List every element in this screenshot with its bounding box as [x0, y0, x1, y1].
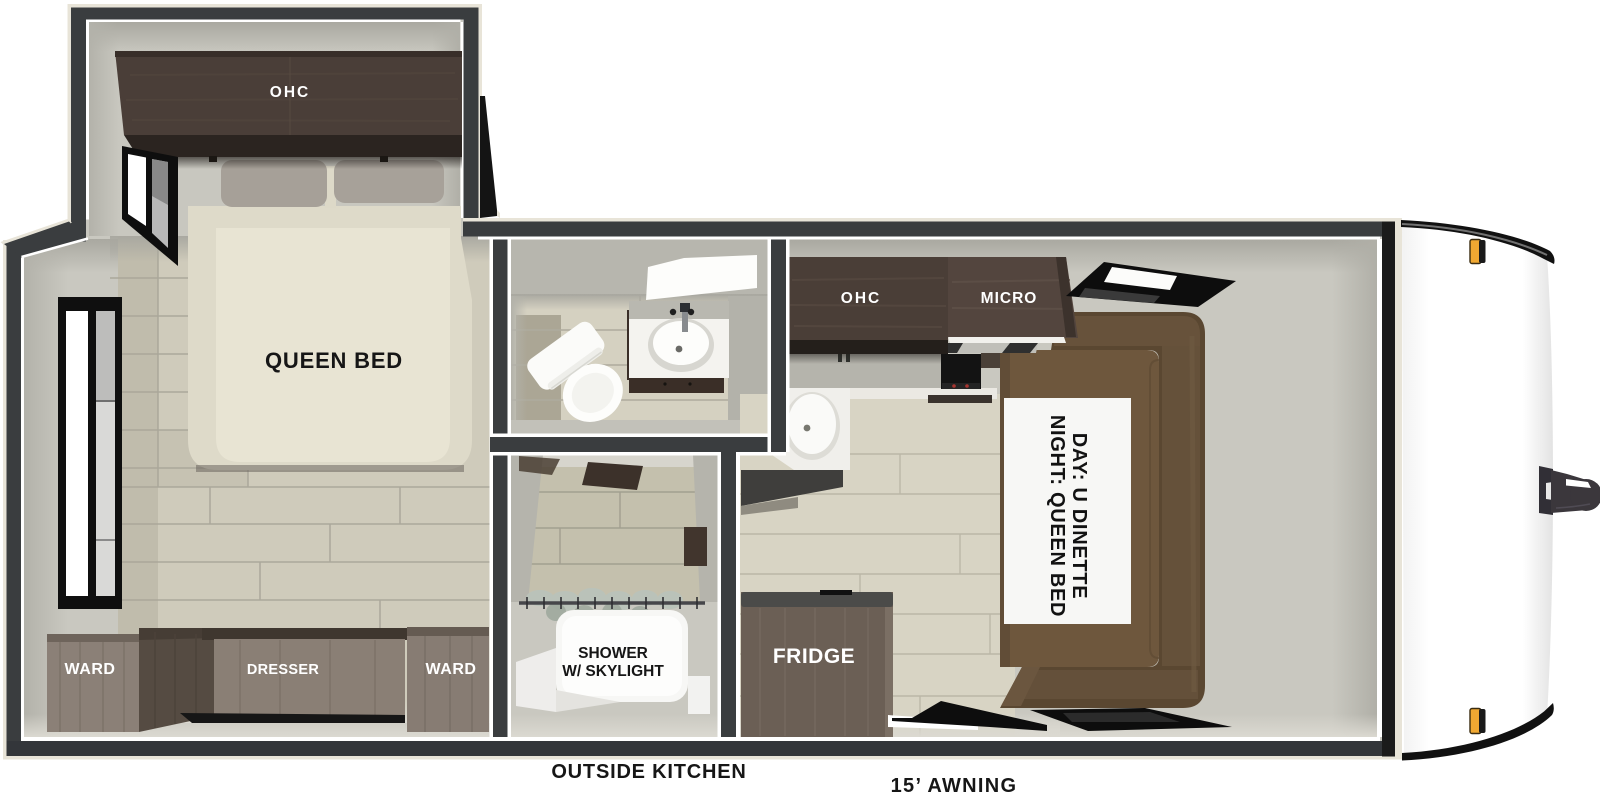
svg-text:NIGHT: QUEEN BED: NIGHT: QUEEN BED: [1046, 415, 1068, 617]
svg-text:W/ SKYLIGHT: W/ SKYLIGHT: [562, 663, 664, 680]
svg-text:SHOWER: SHOWER: [578, 645, 648, 662]
svg-text:OHC: OHC: [270, 84, 310, 101]
svg-text:MICRO: MICRO: [981, 290, 1038, 307]
svg-text:OHC: OHC: [841, 290, 881, 307]
svg-text:FRIDGE: FRIDGE: [773, 645, 855, 668]
svg-text:OUTSIDE KITCHEN: OUTSIDE KITCHEN: [551, 761, 746, 783]
svg-text:DAY: U DINETTE: DAY: U DINETTE: [1068, 433, 1090, 599]
svg-text:QUEEN BED: QUEEN BED: [265, 348, 403, 373]
svg-text:15’ AWNING: 15’ AWNING: [891, 775, 1018, 796]
svg-text:DRESSER: DRESSER: [247, 662, 319, 678]
svg-text:WARD: WARD: [426, 661, 477, 678]
svg-text:WARD: WARD: [65, 661, 116, 678]
